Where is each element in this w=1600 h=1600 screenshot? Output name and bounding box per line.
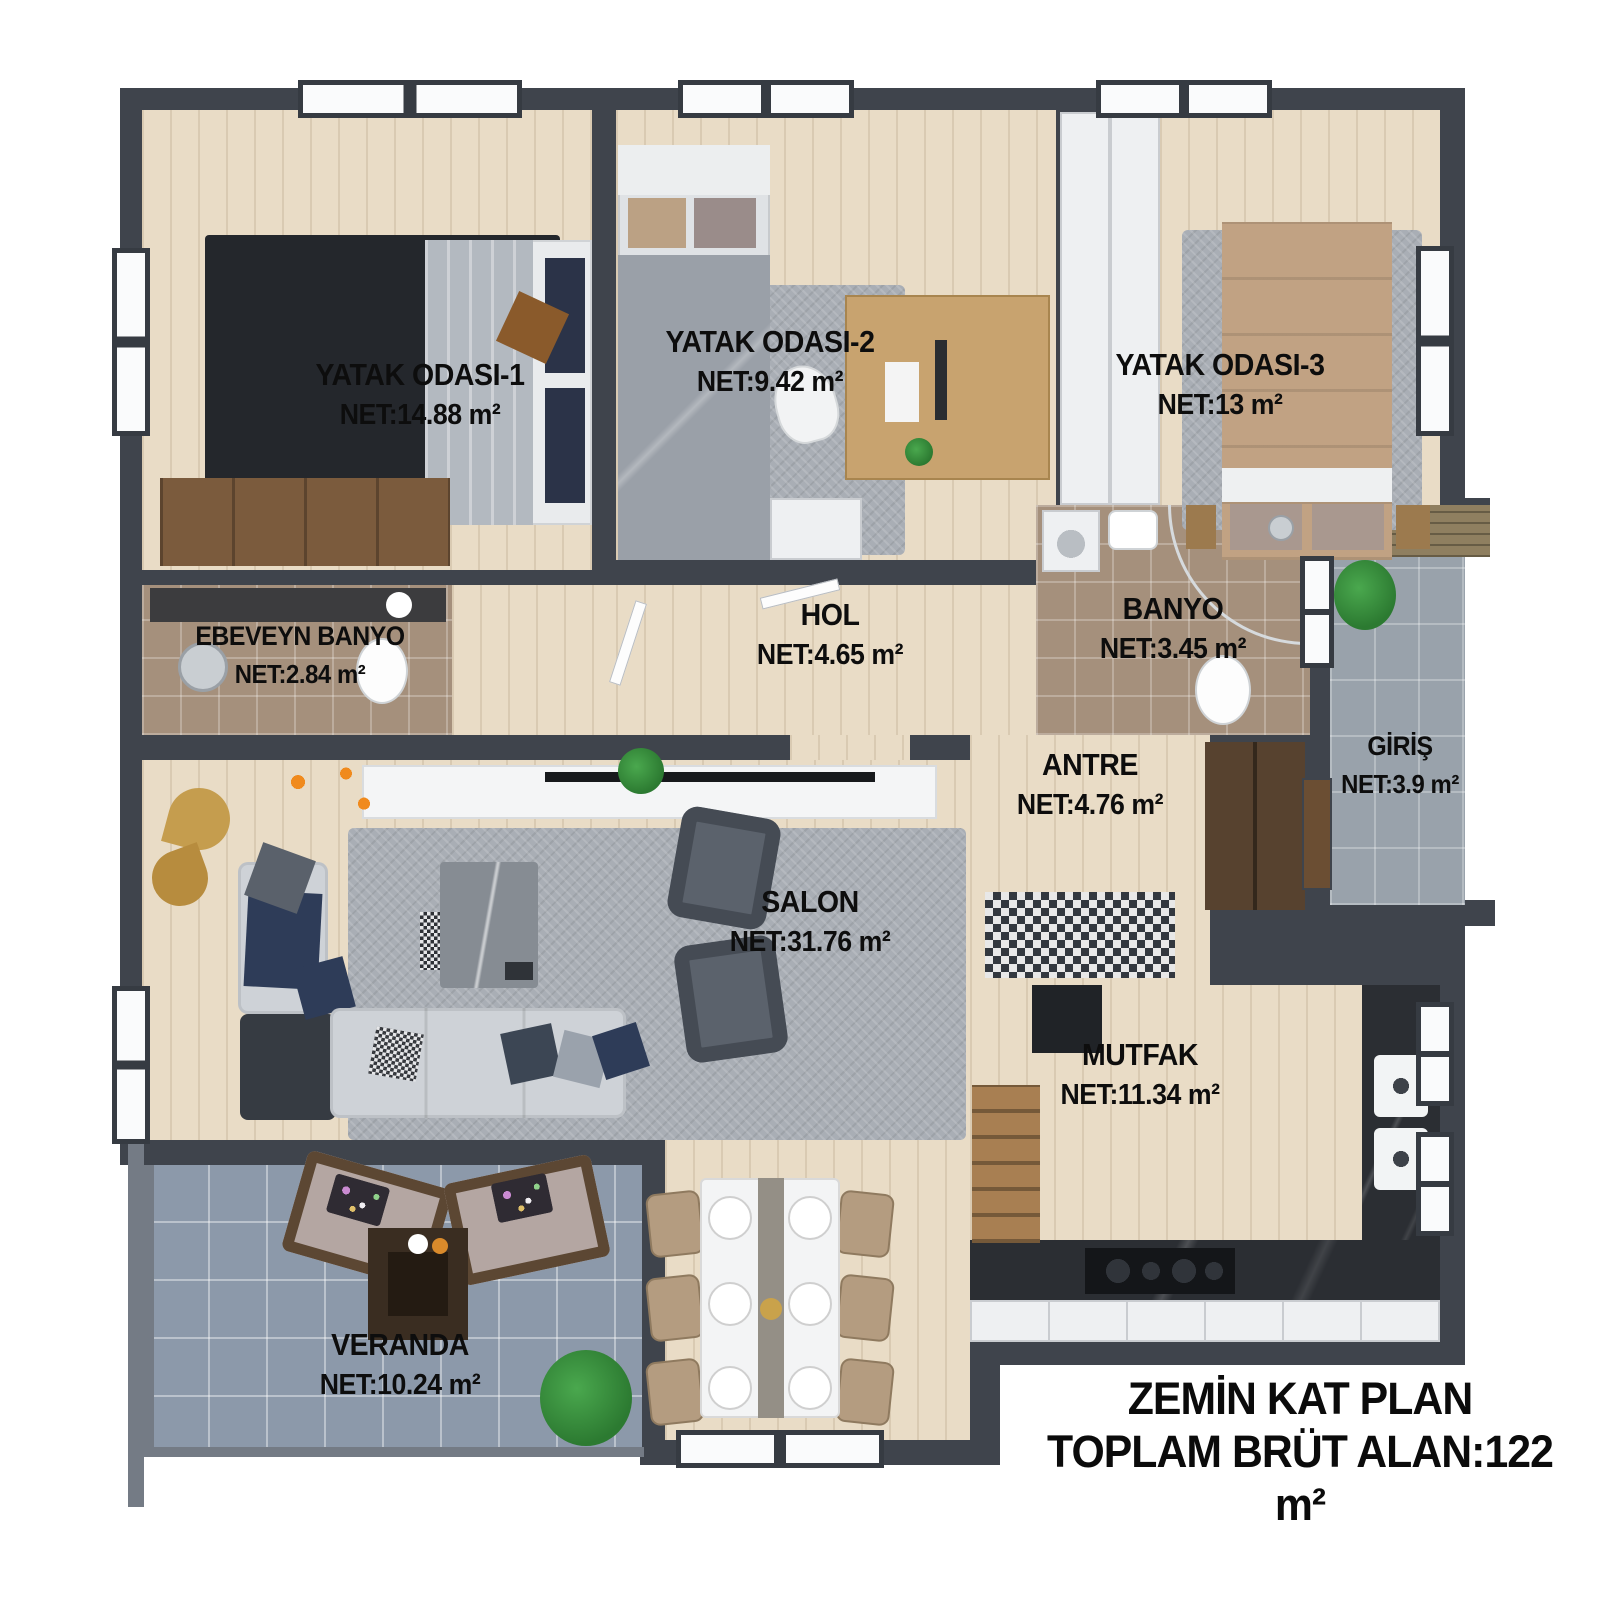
- veranda-cup: [432, 1238, 448, 1254]
- antre-doormat: [985, 892, 1175, 978]
- room-area: NET:14.88 m²: [264, 400, 577, 432]
- kitchen-cabinets: [970, 1300, 1440, 1342]
- room-name: SALON: [654, 885, 967, 919]
- entry-plant: [1334, 560, 1396, 630]
- bedroom1-side-window: [112, 248, 150, 436]
- bedroom1-wardrobe: [160, 478, 450, 566]
- room-area: NET:9.42 m²: [632, 367, 908, 399]
- plan-title: ZEMİN KAT PLAN TOPLAM BRÜT ALAN:122 m²: [1034, 1372, 1566, 1531]
- place-setting: [708, 1282, 752, 1326]
- dining-chair: [835, 1273, 895, 1342]
- place-setting: [788, 1196, 832, 1240]
- bathroom-shower-head: [1268, 515, 1294, 541]
- label-master-bath: EBEVEYN BANYO NET:2.84 m²: [162, 622, 438, 688]
- label-antre: ANTRE NET:4.76 m²: [980, 748, 1201, 822]
- floor-plan: YATAK ODASI-1 NET:14.88 m² YATAK ODASI-2…: [0, 0, 1600, 1600]
- room-area: NET:4.76 m²: [980, 790, 1201, 822]
- bedroom2-headboard: [618, 145, 770, 195]
- room-area: NET:3.9 m²: [1326, 770, 1473, 799]
- dining-chair: [835, 1357, 895, 1426]
- veranda-railing-left: [144, 1165, 154, 1457]
- room-name: YATAK ODASI-3: [1100, 348, 1339, 382]
- plan-title-line1: ZEMİN KAT PLAN: [1034, 1372, 1566, 1425]
- bedroom1-skylight-window: [298, 80, 522, 118]
- room-name: VERANDA: [244, 1328, 557, 1362]
- room-name: GİRİŞ: [1326, 732, 1473, 762]
- label-entry: GİRİŞ NET:3.9 m²: [1326, 732, 1473, 798]
- room-name: BANYO: [1047, 592, 1299, 626]
- bedroom2-pillow: [628, 198, 686, 248]
- place-setting: [788, 1366, 832, 1410]
- bedroom2-pillow: [694, 198, 756, 248]
- label-kitchen: MUTFAK NET:11.34 m²: [984, 1038, 1297, 1112]
- bedroom2-window: [678, 80, 854, 118]
- bedroom2-monitor: [935, 340, 947, 420]
- bathroom-window: [1300, 556, 1334, 668]
- label-salon: SALON NET:31.76 m²: [654, 885, 967, 959]
- plan-title-line2: TOPLAM BRÜT ALAN:122 m²: [1034, 1425, 1566, 1531]
- antre-wardrobe: [1205, 742, 1305, 910]
- label-bedroom3: YATAK ODASI-3 NET:13 m²: [1100, 348, 1339, 422]
- veranda-railing-arm: [128, 1095, 144, 1507]
- room-area: NET:10.24 m²: [244, 1370, 557, 1402]
- dining-chair: [645, 1273, 705, 1342]
- dining-window: [676, 1430, 884, 1468]
- bedroom3-pillow: [1312, 504, 1384, 550]
- kitchen-window: [1416, 1132, 1454, 1236]
- veranda-table-inset: [388, 1252, 448, 1316]
- sofa-chaise: [240, 1014, 336, 1120]
- room-area: NET:3.45 m²: [1047, 634, 1299, 666]
- hall-salon-passage: [790, 735, 910, 760]
- dining-centerpiece: [760, 1298, 782, 1320]
- dining-chair: [645, 1189, 705, 1258]
- bedroom3-skylight-window: [1096, 80, 1272, 118]
- room-area: NET:13 m²: [1100, 390, 1339, 422]
- bedroom2-plant: [905, 438, 933, 466]
- sofa-pillow: [368, 1026, 424, 1082]
- label-bathroom: BANYO NET:3.45 m²: [1047, 592, 1299, 666]
- bathroom-washer: [1042, 510, 1100, 572]
- label-bedroom2: YATAK ODASI-2 NET:9.42 m²: [632, 325, 908, 399]
- room-name: EBEVEYN BANYO: [162, 622, 438, 652]
- bedroom2-blanket: [618, 255, 770, 560]
- room-name: MUTFAK: [984, 1038, 1297, 1072]
- bedroom3-sheet: [1222, 468, 1392, 502]
- dining-chair: [835, 1189, 895, 1258]
- room-area: NET:11.34 m²: [984, 1080, 1297, 1112]
- hall-wardrobe: [1060, 112, 1160, 505]
- room-area: NET:4.65 m²: [655, 640, 1005, 672]
- bedroom3-side-window: [1416, 246, 1454, 436]
- room-area: NET:31.76 m²: [654, 927, 967, 959]
- salon-window: [112, 986, 150, 1144]
- tv: [545, 772, 875, 782]
- bathroom-sink: [1108, 510, 1158, 550]
- room-area: NET:2.84 m²: [162, 660, 438, 689]
- dining-chair: [645, 1357, 705, 1426]
- label-bedroom1: YATAK ODASI-1 NET:14.88 m²: [264, 358, 577, 432]
- place-setting: [708, 1366, 752, 1410]
- dressing-floor: [452, 585, 616, 735]
- kitchen-cooktop: [1085, 1248, 1235, 1294]
- room-name: YATAK ODASI-1: [264, 358, 577, 392]
- room-name: YATAK ODASI-2: [632, 325, 908, 359]
- room-name: HOL: [655, 598, 1005, 632]
- room-name: ANTRE: [980, 748, 1201, 782]
- place-setting: [788, 1282, 832, 1326]
- label-hall: HOL NET:4.65 m²: [655, 598, 1005, 672]
- salon-plant: [268, 752, 388, 838]
- bedroom3-nightstand: [1396, 505, 1430, 549]
- kitchen-window: [1416, 1002, 1454, 1106]
- veranda-cup: [408, 1234, 428, 1254]
- salon-plant: [618, 748, 664, 794]
- bedroom2-dresser: [770, 498, 862, 560]
- coffee-table-tray: [505, 962, 533, 980]
- master-bath-sink: [386, 592, 412, 618]
- veranda-railing-bottom: [144, 1447, 644, 1457]
- label-veranda: VERANDA NET:10.24 m²: [244, 1328, 557, 1402]
- place-setting: [708, 1196, 752, 1240]
